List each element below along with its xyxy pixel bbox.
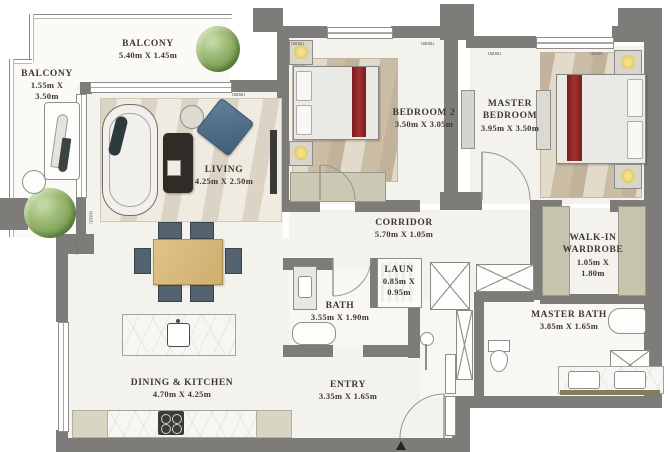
room-label-dining-kitchen: DINING & KITCHEN 4.70m X 4.25m: [131, 377, 234, 400]
entry-closet-door: [445, 396, 456, 436]
pillow: [627, 79, 643, 117]
bath-sink: [298, 276, 312, 298]
room-dims: 3.85m X 1.65m: [531, 321, 607, 332]
room-label-master-bath: MASTER BATH 3.85m X 1.65m: [531, 309, 607, 332]
dining-table: [153, 239, 223, 285]
balcony-railing: [29, 14, 34, 62]
room-dims: 0.85m X: [383, 276, 415, 287]
dining-chair: [190, 285, 214, 302]
wall: [440, 192, 482, 210]
window: [90, 82, 232, 93]
seal-mark: uuuuu: [488, 51, 501, 57]
room-name: CORRIDOR: [375, 217, 433, 229]
floor-plan: uuuuu uuuuu uuuuu uuuuu uuuuu uuuuu uuuu…: [0, 0, 668, 452]
room-label-bedroom-2: BEDROOM 2 3.50m X 3.05m: [393, 107, 456, 130]
room-label-balcony-top: BALCONY 5.40m X 1.45m: [119, 38, 177, 61]
room-dims: 3.55m X 1.90m: [311, 312, 369, 323]
tv-console: [270, 130, 277, 194]
lamp: [294, 45, 308, 59]
room-dims: 4.25m X 2.50m: [195, 176, 253, 187]
pillow: [296, 105, 312, 135]
room-label-master-bedroom: MASTER BEDROOM 3.95m X 3.50m: [481, 98, 539, 134]
room-label-living: LIVING 4.25m X 2.50m: [195, 164, 253, 187]
room-name: LIVING: [195, 164, 253, 176]
balcony-table: [22, 170, 46, 194]
room-name: ENTRY: [319, 379, 377, 391]
wall: [283, 26, 327, 38]
window: [327, 27, 393, 39]
bedroom2-closet: [290, 172, 386, 202]
pillow: [627, 121, 643, 159]
seal-mark: uuuuu: [73, 242, 79, 255]
room-dims: 3.35m X 1.65m: [319, 391, 377, 402]
dining-chair: [190, 222, 214, 239]
room-name: MASTER: [481, 98, 539, 110]
nightstand: [614, 50, 642, 75]
pillow: [296, 71, 312, 101]
dresser: [461, 90, 475, 149]
nightstand: [289, 141, 313, 166]
sink: [614, 371, 646, 389]
room-dims: 4.70m X 4.25m: [131, 389, 234, 400]
lamp: [294, 146, 308, 160]
room-name: DINING & KITCHEN: [131, 377, 234, 389]
wall: [474, 300, 484, 398]
dining-chair: [158, 222, 182, 239]
seal-mark: uuuuu: [87, 211, 93, 224]
room-name: BATH: [311, 300, 369, 312]
room-label-corridor: CORRIDOR 5.70m X 1.05m: [375, 217, 433, 240]
wall: [644, 26, 662, 404]
room-name: BALCONY: [119, 38, 177, 50]
room-label-entry: ENTRY 3.35m X 1.65m: [319, 379, 377, 402]
service-shaft: [456, 310, 473, 380]
wall: [618, 8, 662, 28]
room-label-balcony-left: BALCONY 1.55m X 3.50m: [21, 68, 73, 102]
plant: [24, 188, 76, 238]
bed-bedroom2: [293, 66, 379, 140]
room-label-laundry: LAUN 0.85m X 0.95m: [383, 264, 415, 298]
entry-closet-door: [445, 354, 456, 394]
room-dims: 3.50m: [21, 91, 73, 102]
room-dims: 1.55m X: [21, 80, 73, 91]
wall: [56, 234, 68, 322]
room-dims: 3.50m X 3.05m: [393, 119, 456, 130]
dining-chair: [134, 248, 151, 274]
sink: [568, 371, 600, 389]
entry-arrow-icon: [396, 441, 406, 450]
service-shaft: [476, 264, 534, 292]
shower-pipe: [425, 344, 427, 370]
counter-end: [256, 410, 292, 438]
room-dims: 5.40m X 1.45m: [119, 50, 177, 61]
room-label-bath: BATH 3.55m X 1.90m: [311, 300, 369, 323]
room-dims: 1.05m X: [563, 257, 624, 268]
wall: [76, 196, 86, 238]
room-label-walkin-wardrobe: WALK-IN WARDROBE 1.05m X 1.80m: [563, 232, 624, 279]
vanity-shelf: [560, 390, 660, 395]
window: [536, 37, 614, 49]
dining-chair: [158, 285, 182, 302]
seal-mark: uuuuu: [232, 92, 245, 98]
room-name: WALK-IN: [563, 232, 624, 244]
island-sink: [167, 323, 190, 347]
room-name: BALCONY: [21, 68, 73, 80]
sofa: [102, 104, 158, 216]
faucet: [176, 319, 180, 323]
bed-runner: [567, 75, 582, 161]
stove: [158, 411, 184, 435]
plant: [196, 26, 240, 72]
wall: [466, 36, 536, 48]
seal-mark: uuuuu: [291, 41, 304, 47]
bed-master: [556, 74, 646, 164]
seal-mark: uuuuu: [590, 51, 603, 57]
window: [58, 322, 69, 432]
nightstand: [614, 164, 642, 189]
room-name: BEDROOM: [481, 110, 539, 122]
lamp: [621, 169, 635, 183]
shower-head: [420, 332, 434, 346]
lamp: [621, 55, 635, 69]
master-bathtub: [608, 308, 646, 334]
room-name: WARDROBE: [563, 244, 624, 256]
service-shaft: [430, 262, 470, 310]
room-name: LAUN: [383, 264, 415, 276]
counter-end: [72, 410, 108, 438]
coffee-table-tray: [167, 160, 181, 176]
room-name: MASTER BATH: [531, 309, 607, 321]
bathtub: [292, 322, 336, 345]
dining-chair: [225, 248, 242, 274]
wall: [391, 26, 444, 38]
room-dims: 3.95m X 3.50m: [481, 123, 539, 134]
balcony-railing: [30, 14, 232, 19]
room-name: BEDROOM 2: [393, 107, 456, 119]
room-dims: 1.80m: [563, 268, 624, 279]
wall: [283, 345, 333, 357]
seal-mark: uuuuu: [421, 41, 434, 47]
room-dims: 5.70m X 1.05m: [375, 229, 433, 240]
wall: [230, 80, 283, 92]
bed-runner: [352, 67, 366, 137]
room-dims: 0.95m: [383, 287, 415, 298]
wall: [470, 396, 662, 408]
